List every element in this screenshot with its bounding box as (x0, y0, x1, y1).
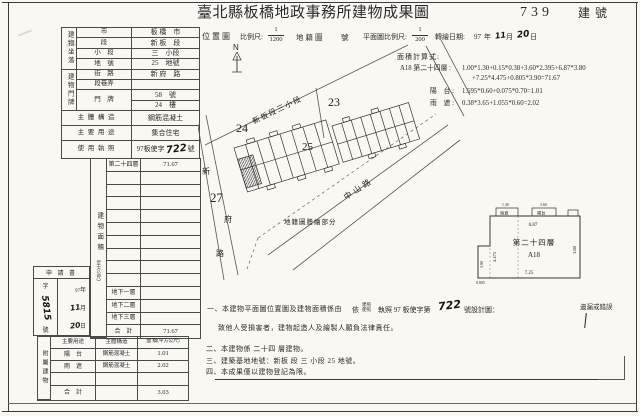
annex-use (51, 373, 96, 386)
annex-total-value: 3.03 (138, 386, 188, 400)
row-label: 地 號 (77, 59, 132, 69)
map-trace-note: 地籍圖謄繪部分 (284, 217, 337, 226)
floor-value (141, 223, 200, 236)
calc-line1-continued: +7.25*4.475+0.805*3.90=71.67 (472, 76, 560, 83)
row-label: 段 (77, 38, 132, 48)
border-right (636, 2, 637, 412)
annex-area (138, 373, 188, 386)
license-suffix: 號 (187, 146, 194, 153)
inner-bottom-rule (8, 403, 636, 404)
row-value: 24 樓 (132, 101, 199, 111)
annex-area: 1.01 (138, 349, 188, 361)
annex-vertical-label: 附屬建物 (38, 337, 51, 400)
transfer-date-month-handwritten: 11 (495, 31, 507, 40)
note-4: 三、建築基地地號：新板 段 三 小段 25 地號。 (206, 358, 360, 365)
application-month: 11月 (70, 303, 86, 312)
floor-area-vertical-label: 建物面積 （平方公尺） (91, 159, 107, 338)
plan-construction-lines (490, 216, 518, 278)
floor-value (141, 313, 200, 326)
floor-plan: 6.87 7.25 3.80 4.475 3.90 0.805 1.30 3.6… (468, 182, 598, 297)
road-left-char-2: 府 (224, 214, 232, 224)
annex-structure (96, 373, 138, 386)
row-value: 58 號 (132, 90, 199, 100)
row-value: 板 橋 市 (132, 28, 199, 38)
dim-top-seg1: 1.30 (502, 203, 509, 207)
transfer-date-day-handwritten: 20 (516, 30, 530, 40)
note-1-yi: 依 (352, 307, 359, 314)
license-type-bottom: 使照 (362, 307, 371, 312)
month-char: 月 (506, 34, 513, 41)
calc-balcony-formula: 1.595*0.60+0.075*0.70=1.01 (462, 89, 543, 96)
row-value (132, 80, 199, 90)
floor-value (141, 197, 200, 210)
annex-structure: 鋼筋混凝土 (96, 361, 138, 373)
note-2: 致他人受損害者，建物起造人及繪製人願負法律責任。 (218, 325, 398, 332)
building-number: 739 (520, 6, 553, 20)
floor-value (141, 236, 200, 249)
lot-25-label: 25 (302, 141, 314, 153)
page-title: 臺北縣板橋地政事務所建物成果圖 (197, 6, 430, 21)
main-use-label: 主 要 用 途 (62, 126, 132, 141)
dim-top: 6.87 (529, 223, 538, 228)
note-1d: 號設計圖： (464, 307, 499, 314)
license-prefix: 97板使字 (137, 146, 165, 153)
plan-scale-numerator: 1 (418, 27, 421, 34)
floor-name: 第二十四層 (107, 159, 141, 172)
application-day: 20日 (70, 321, 86, 330)
number-prefix: 字 (42, 281, 48, 290)
border-bottom (2, 411, 638, 412)
floor-name (107, 185, 141, 198)
border-top (2, 2, 638, 3)
floor-name (107, 236, 141, 249)
dim-right: 3.80 (572, 245, 577, 254)
group-label-address: 建物門牌 (62, 70, 77, 112)
annex-header-structure: 主體構造 (96, 337, 138, 349)
lot-24-label: 24 (236, 121, 248, 135)
floor-name (107, 197, 141, 210)
floor-name (107, 261, 141, 274)
license-type-options: 建照 使照 (362, 302, 371, 313)
application-stamp-box: 申 請 書 字 5815 號 97年 11月 20日 (33, 266, 90, 336)
annex-building-table: 附屬建物 主要用途 主體構造 面 積(平方公尺) 陽 台 鋼筋混凝土 1.01 … (37, 336, 189, 401)
annex-use: 雨 遮 (51, 361, 96, 373)
floor-name (107, 172, 141, 185)
floor-name: 地下二層 (107, 300, 141, 313)
row-label: 段巷弄 (77, 80, 132, 90)
note-1a: 一、本建物平面圖位置圖及建物面積係由 (207, 306, 342, 313)
application-title: 申 請 書 (34, 267, 89, 279)
floor-value (141, 249, 200, 262)
application-year: 97年 (75, 285, 86, 294)
floor-value (141, 261, 200, 274)
main-use-value: 集合住宅 (132, 126, 199, 141)
annex-header-use: 主要用途 (51, 337, 96, 349)
floor-area-label-text: 建物面積 (95, 212, 102, 254)
annex-use: 陽 台 (51, 349, 96, 361)
balcony-label: 陽台 (537, 210, 545, 217)
row-label: 小 段 (77, 49, 132, 59)
floor-value: 71.67 (141, 159, 200, 172)
dim-top-seg2: 3.60 (540, 203, 547, 207)
annex-structure: 鋼筋混凝土 (96, 349, 138, 361)
map-dashed-lines (246, 114, 436, 272)
year-char: 年 (484, 34, 491, 41)
building-location-table: 建物坐落 市 板 橋 市 段 新 板 段 小 段 三 小段 地 號 25 地號 … (61, 27, 200, 159)
group-label-location: 建物坐落 (62, 28, 77, 70)
use-license-value: 97板使字 722 號 (132, 141, 199, 158)
dim-bottom: 7.25 (525, 271, 534, 276)
use-license-label: 使 用 執 照 (62, 141, 132, 158)
annex-total-spacer (96, 386, 138, 400)
lot-23-label: 23 (328, 95, 340, 109)
dim-left-inner: 4.475 (492, 251, 497, 262)
plan-unit-label: A18 (528, 251, 541, 259)
canopy-label: 雨遮 (500, 210, 508, 217)
floor-name (107, 274, 141, 287)
annex-area: 2.02 (138, 361, 188, 373)
transfer-date-year: 97 (474, 34, 481, 41)
row-label: 街 路 (77, 70, 132, 80)
row-label: 市 (77, 28, 132, 38)
plan-floor-label: 第二十四層 (513, 237, 556, 247)
note-3: 二、本建物係 二十四 層建物。 (206, 346, 308, 353)
application-number-column: 字 5815 號 (34, 279, 58, 336)
floor-area-unit-text: （平方公尺） (96, 257, 101, 284)
floor-value (141, 172, 200, 185)
row-label: 門 牌 (77, 90, 132, 111)
calc-canopy-formula: 0.38*3.65+1.055*0.60=2.02 (462, 101, 539, 108)
number-suffix: 號 (42, 325, 48, 334)
day-char: 日 (530, 34, 537, 41)
road-left-char-1: 新 (202, 166, 210, 176)
subject-unit-hatched (238, 155, 262, 188)
license-number-handwritten: 722 (165, 143, 187, 155)
note-1c: 執照 97 板使字第 (378, 307, 431, 314)
building-block-left (233, 116, 341, 196)
dim-bottom-left: 0.805 (476, 280, 485, 285)
application-date-column: 97年 11月 20日 (58, 279, 89, 336)
note-license-number-handwritten: 722 (437, 299, 461, 313)
calc-line1-formula: 1.00*1.30+0.15*0.38+3.60*2.395+6.87*3.80 (462, 66, 586, 73)
floor-name (107, 223, 141, 236)
structure-label: 主 體 構 造 (62, 111, 132, 126)
floor-value (141, 210, 200, 223)
annex-total-label: 合 計 (51, 386, 96, 400)
floor-name (107, 249, 141, 262)
location-map: 新板段三小段 23 24 25 27 新 府 路 中山路 地籍圖謄繪部分 (198, 40, 470, 280)
annex-header-area: 面 積(平方公尺) (138, 337, 188, 349)
structure-value: 鋼筋混凝土 (132, 111, 199, 126)
floor-area-table: 建物面積 （平方公尺） 第二十四層 71.67 地下一層 地下二層 地下三層 合… (90, 158, 201, 339)
road-zhongshan-label: 中山路 (342, 175, 375, 201)
floor-value (141, 274, 200, 287)
building-number-suffix: 建號 (578, 7, 612, 19)
floor-name: 地下一層 (107, 287, 141, 300)
location-scale-numerator: 1 (274, 27, 277, 34)
scanned-building-survey-document: 臺北縣板橋地政事務所建物成果圖 739 建號 位置圖 比例尺: 1 1200 地… (0, 0, 640, 416)
floor-name: 地下三層 (107, 313, 141, 326)
building-block-right (331, 99, 421, 166)
note-1e: 遺漏或錯誤 (580, 305, 613, 312)
floor-value (141, 185, 200, 198)
row-value: 新 府 路 (132, 70, 199, 80)
road-left-char-3: 路 (216, 248, 224, 258)
lot-27-label: 27 (210, 190, 224, 205)
row-value: 新 板 段 (132, 38, 199, 48)
dim-left: 3.90 (479, 261, 484, 268)
floor-value (141, 287, 200, 300)
section-boundary-label: 新板段三小段 (250, 93, 303, 126)
notes-underline (215, 379, 618, 380)
row-value: 三 小段 (132, 49, 199, 59)
floor-value (141, 300, 200, 313)
floor-name (107, 210, 141, 223)
application-number-handwritten: 5815 (39, 294, 52, 320)
row-value: 25 地號 (132, 59, 199, 69)
border-left (8, 2, 9, 412)
note-5: 四、本成果僅以建物登記為限。 (206, 369, 311, 376)
corner-mark (598, 356, 625, 380)
